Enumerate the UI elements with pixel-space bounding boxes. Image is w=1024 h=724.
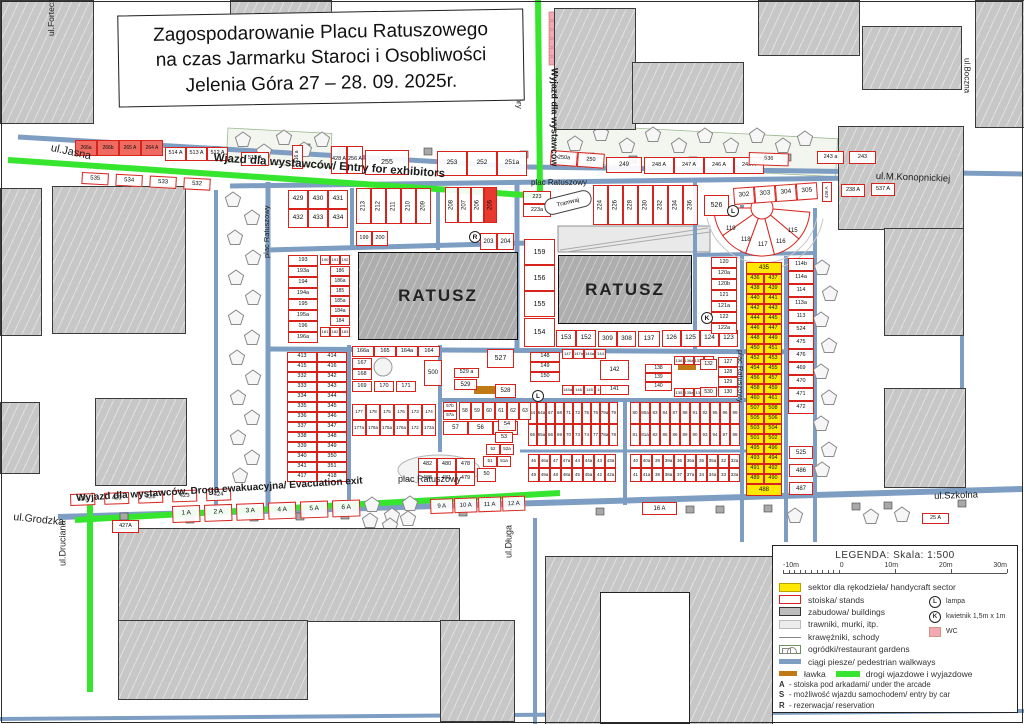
legend-item-label: drogi wjazdowe i wyjazdowe bbox=[866, 669, 973, 679]
stall-47a: 47a bbox=[561, 454, 572, 468]
stall-449: 449 bbox=[764, 334, 782, 344]
scale-tick: 20m bbox=[939, 562, 953, 569]
stall-6a: 6 A bbox=[332, 499, 361, 517]
stall-434: 434 bbox=[328, 209, 348, 228]
stall-482: 482 bbox=[418, 458, 437, 472]
stall-456: 456 bbox=[746, 374, 764, 384]
stall-57a: 57a bbox=[443, 411, 457, 420]
stall-429: 429 bbox=[288, 190, 308, 209]
stall-164: 164 bbox=[418, 346, 440, 357]
stall-469: 469 bbox=[788, 362, 814, 375]
stall-440: 440 bbox=[746, 294, 764, 304]
stall-495: 495 bbox=[746, 444, 764, 454]
stall-65a: 65a bbox=[537, 424, 546, 446]
stall-476: 476 bbox=[788, 349, 814, 362]
stall-334: 334 bbox=[287, 392, 317, 402]
building bbox=[758, 0, 860, 56]
legend-item-label: krawężniki, schody bbox=[808, 632, 879, 642]
stall-38a: 38a bbox=[663, 468, 674, 482]
street-label-boczna: ul.Boczna bbox=[962, 58, 970, 118]
street-label-szkolna: ul.Szkolna bbox=[934, 490, 978, 501]
stall-537a: 537 A bbox=[871, 183, 895, 196]
legend-swatch-bench bbox=[779, 671, 797, 676]
stall-38: 38 bbox=[652, 468, 663, 482]
scale-tick: 0 bbox=[840, 562, 844, 569]
stall-195a: 195a bbox=[288, 310, 318, 321]
plac-ratuszowy-label-east: plac Ratuszowy bbox=[736, 350, 744, 430]
legend-symbol-label: WC bbox=[946, 628, 958, 635]
building bbox=[95, 398, 187, 486]
stall-121a: 121a bbox=[711, 301, 737, 312]
stall-16a: 16 A bbox=[642, 502, 677, 515]
stall-177a: 177a bbox=[352, 420, 366, 436]
stall-208: 208 bbox=[445, 187, 458, 223]
stall-199: 199 bbox=[356, 231, 372, 246]
svg-text:117: 117 bbox=[758, 242, 768, 248]
stall-52: 52 bbox=[486, 444, 500, 455]
stall-61: 61 bbox=[495, 402, 507, 420]
stall-228: 228 bbox=[623, 185, 638, 225]
scale-bar: -10m 0 10m 20m 30m bbox=[783, 562, 1007, 578]
stall-10a: 10 A bbox=[454, 497, 478, 513]
stall-526: 526 bbox=[704, 195, 729, 216]
stall-436: 436 bbox=[746, 274, 764, 284]
stall-344: 344 bbox=[317, 392, 347, 402]
stall-459: 459 bbox=[764, 384, 782, 394]
stall-190: 190 bbox=[320, 255, 330, 265]
map-title: Zagospodarowanie Placu Ratuszowego na cz… bbox=[117, 8, 525, 107]
stall-126: 126 bbox=[662, 330, 681, 347]
legend-swatch-walkway bbox=[779, 659, 801, 664]
stall-504: 504 bbox=[764, 424, 782, 434]
stall-25a: 25 A bbox=[922, 513, 949, 524]
stall-470: 470 bbox=[788, 375, 814, 388]
stall-184a: 184a bbox=[330, 306, 350, 316]
circle-marker-r: R bbox=[469, 231, 481, 243]
stall-489: 489 bbox=[746, 474, 764, 484]
stall-431: 431 bbox=[328, 190, 348, 209]
round-planter bbox=[374, 358, 392, 376]
stall-147: 147 bbox=[562, 349, 573, 359]
stall-514a: 514 A bbox=[165, 147, 186, 161]
legend-item-label: ogródki/restaurant gardens bbox=[808, 644, 910, 654]
legend-note: - rezerwacja/ reservation bbox=[789, 702, 874, 711]
site-map: 115 116 117 118 119 bbox=[0, 0, 1024, 724]
stall-36a: 36a bbox=[685, 454, 696, 468]
stall-249: 249 bbox=[606, 157, 642, 173]
stall-505: 505 bbox=[746, 414, 764, 424]
stall-246a: 246 A bbox=[704, 157, 734, 174]
stall-491: 491 bbox=[746, 464, 764, 474]
stall-39a: 39a bbox=[663, 454, 674, 468]
stall-166a: 166a bbox=[352, 346, 374, 357]
stall-340: 340 bbox=[287, 452, 317, 462]
stall-142: 142 bbox=[600, 360, 629, 380]
stall-251a: 251a bbox=[497, 151, 527, 176]
stall-494: 494 bbox=[764, 454, 782, 464]
stall-155: 155 bbox=[524, 291, 555, 317]
stall-183: 183 bbox=[340, 327, 350, 337]
stall-146: 146 bbox=[573, 385, 584, 395]
stall-427a: 427A bbox=[112, 520, 139, 533]
stall-45a: 45a bbox=[583, 468, 594, 482]
stall-524: 524 bbox=[788, 323, 814, 336]
stall-432: 432 bbox=[288, 209, 308, 228]
stall-488: 488 bbox=[746, 484, 782, 496]
stall-243a: 243 a bbox=[817, 151, 844, 164]
stall-193a: 193a bbox=[288, 266, 318, 277]
stall-11a: 11 A bbox=[478, 497, 502, 513]
stall-207: 207 bbox=[458, 187, 471, 223]
wc-icon bbox=[929, 627, 941, 637]
stall-48a: 48a bbox=[561, 468, 572, 482]
stall-132: 132 bbox=[700, 359, 717, 370]
stall-415: 415 bbox=[287, 362, 317, 372]
stall-114a: 114a bbox=[788, 271, 814, 284]
stall-48: 48 bbox=[550, 468, 561, 482]
scale-tick: -10m bbox=[783, 562, 799, 569]
stall-33a: 33a bbox=[729, 468, 740, 482]
stall-145: 145 bbox=[584, 385, 595, 395]
stall-149: 149 bbox=[530, 362, 560, 372]
stall-152: 152 bbox=[576, 330, 596, 347]
stall-66: 66 bbox=[546, 424, 555, 446]
stall-120b: 120b bbox=[711, 279, 737, 290]
building bbox=[975, 0, 1024, 128]
legend-symbols: Llampa Kkwietnik 1,5m x 1m WC bbox=[929, 594, 1015, 639]
stall-70: 70 bbox=[564, 424, 573, 446]
stall-458: 458 bbox=[746, 384, 764, 394]
stall-145a: 145a bbox=[562, 385, 573, 395]
stall-451: 451 bbox=[764, 344, 782, 354]
stall-333: 333 bbox=[287, 382, 317, 392]
stall-175a: 175a bbox=[380, 420, 394, 436]
stall-81a: 81a bbox=[640, 424, 650, 446]
stall-46: 46 bbox=[528, 454, 539, 468]
stall-168: 168 bbox=[352, 369, 372, 380]
courtyard bbox=[600, 592, 690, 724]
stall-426a: 426 A bbox=[822, 182, 832, 202]
stall-194: 194 bbox=[288, 277, 318, 288]
stall-144a: 144a bbox=[584, 349, 595, 359]
note-key: S bbox=[779, 691, 789, 700]
stall-62: 62 bbox=[507, 402, 519, 420]
stall-351: 351 bbox=[317, 462, 347, 472]
stall-113a: 113a bbox=[788, 297, 814, 310]
stall-44a: 44a bbox=[583, 454, 594, 468]
stall-503: 503 bbox=[746, 424, 764, 434]
legend-swatch-road bbox=[836, 671, 860, 677]
stall-139: 139 bbox=[645, 373, 672, 382]
stall-211: 211 bbox=[386, 188, 401, 224]
stall-37a: 37a bbox=[685, 468, 696, 482]
svg-text:115: 115 bbox=[788, 228, 798, 234]
stall-439: 439 bbox=[764, 284, 782, 294]
stall-138: 138 bbox=[645, 364, 672, 373]
stall-347: 347 bbox=[317, 422, 347, 432]
stall-89: 89 bbox=[680, 424, 690, 446]
stall-248a: 248 A bbox=[644, 157, 674, 174]
stall-141: 141 bbox=[600, 385, 629, 395]
stall-42: 42 bbox=[594, 468, 605, 482]
stall-46a: 46a bbox=[539, 454, 550, 468]
stall-164a: 164a bbox=[396, 346, 418, 357]
stall-47: 47 bbox=[550, 454, 561, 468]
stall-532: 532 bbox=[183, 177, 211, 190]
stall-144: 144 bbox=[595, 349, 606, 359]
note-key: R bbox=[779, 702, 789, 711]
stall-472: 472 bbox=[788, 401, 814, 414]
stall-487: 487 bbox=[789, 482, 813, 495]
stall-127: 127 bbox=[718, 357, 738, 367]
stall-75: 75 bbox=[582, 402, 591, 424]
stall-49: 49 bbox=[528, 468, 539, 482]
legend: LEGENDA: Skala: 1:500 -10m 0 10m 20m 30m… bbox=[772, 545, 1018, 713]
stall-305: 305 bbox=[796, 182, 818, 200]
stall-51: 51 bbox=[483, 456, 497, 467]
stall-39: 39 bbox=[652, 454, 663, 468]
stall-88: 88 bbox=[680, 402, 690, 424]
stall-349: 349 bbox=[317, 442, 347, 452]
stall-490: 490 bbox=[764, 474, 782, 484]
stall-441: 441 bbox=[764, 294, 782, 304]
stall-114: 114 bbox=[788, 284, 814, 297]
stall-335: 335 bbox=[287, 402, 317, 412]
stall-176: 176 bbox=[394, 404, 408, 420]
town-hall-west: RATUSZ bbox=[358, 252, 518, 340]
stall-341: 341 bbox=[287, 462, 317, 472]
stall-336: 336 bbox=[287, 412, 317, 422]
stall-500: 500 bbox=[424, 360, 442, 386]
stall-534: 534 bbox=[115, 174, 143, 187]
stall-173: 173 bbox=[408, 404, 422, 420]
stall-72: 72 bbox=[573, 402, 582, 424]
street-label-druciana: ul.Druciana bbox=[59, 486, 68, 566]
stall-414: 414 bbox=[317, 352, 347, 362]
stall-54: 54 bbox=[498, 419, 516, 431]
stall-302: 302 bbox=[733, 187, 755, 205]
stall-445: 445 bbox=[764, 314, 782, 324]
stall-342: 342 bbox=[317, 372, 347, 382]
stall-348: 348 bbox=[317, 432, 347, 442]
stall-339: 339 bbox=[287, 442, 317, 452]
circle-marker-l: L bbox=[532, 390, 544, 402]
stall-57: 57 bbox=[443, 421, 468, 435]
legend-swatch-buildings bbox=[779, 607, 801, 616]
stall-71: 71 bbox=[564, 402, 573, 424]
stall-43a: 43a bbox=[605, 454, 616, 468]
circle-marker-k: K bbox=[701, 312, 713, 324]
svg-text:118: 118 bbox=[741, 237, 751, 243]
stall-507: 507 bbox=[746, 404, 764, 414]
stall-528: 528 bbox=[495, 384, 516, 398]
stall-226: 226 bbox=[608, 185, 623, 225]
legend-symbol-label: kwietnik 1,5m x 1m bbox=[946, 613, 1006, 620]
stall-159: 159 bbox=[524, 239, 555, 265]
stall-32a: 32a bbox=[729, 454, 740, 468]
exit-for-exhibitors-vertical-label: Wyjazd dla wystawców bbox=[549, 68, 558, 188]
stall-52a: 52a bbox=[500, 444, 514, 455]
legend-swatch-handicraft bbox=[779, 583, 801, 592]
stall-120: 120 bbox=[711, 257, 737, 268]
stall-170: 170 bbox=[374, 381, 394, 392]
scale-tick: 30m bbox=[993, 562, 1007, 569]
stall-343: 343 bbox=[317, 382, 347, 392]
stall-206: 206 bbox=[471, 187, 484, 223]
stall-444: 444 bbox=[746, 314, 764, 324]
legend-item-label: zabudowa/ buildings bbox=[808, 607, 885, 617]
stall-136: 136 bbox=[674, 356, 684, 365]
stall-153: 153 bbox=[556, 330, 576, 347]
stall-174: 174 bbox=[422, 404, 436, 420]
stall-203: 203 bbox=[480, 233, 497, 250]
legend-swatch-curb bbox=[779, 637, 801, 638]
stall-212: 212 bbox=[371, 188, 386, 224]
stall-209: 209 bbox=[416, 188, 431, 224]
stall-59: 59 bbox=[471, 402, 483, 420]
stall-172a: 172a bbox=[422, 420, 436, 436]
stall-44: 44 bbox=[572, 454, 583, 468]
stall-80: 80 bbox=[630, 402, 640, 424]
stall-446: 446 bbox=[746, 324, 764, 334]
note-key: A bbox=[779, 681, 789, 690]
stall-192: 192 bbox=[340, 255, 350, 265]
town-hall-label: RATUSZ bbox=[585, 280, 665, 300]
stall-193: 193 bbox=[288, 255, 318, 266]
stall-506: 506 bbox=[764, 414, 782, 424]
stall-250: 250 bbox=[577, 152, 605, 169]
stall-513a: 513 A bbox=[186, 147, 207, 161]
stall-2a: 2 A bbox=[204, 504, 233, 522]
stall-492: 492 bbox=[764, 464, 782, 474]
stall-200: 200 bbox=[372, 231, 388, 246]
stall-67: 67 bbox=[546, 402, 555, 424]
legend-symbol-label: lampa bbox=[946, 598, 965, 605]
stall-486: 486 bbox=[789, 464, 813, 477]
plac-ratuszowy-label-bottom: plac Ratuszowy bbox=[398, 475, 461, 484]
svg-text:119: 119 bbox=[726, 226, 736, 232]
stall-96: 96 bbox=[720, 402, 730, 424]
building bbox=[632, 62, 744, 124]
stall-460: 460 bbox=[746, 394, 764, 404]
stall-167: 167 bbox=[352, 358, 372, 369]
stall-73: 73 bbox=[573, 424, 582, 446]
stall-493: 493 bbox=[746, 454, 764, 464]
stall-64a: 64a bbox=[537, 402, 546, 424]
stall-5a: 5 A bbox=[300, 501, 329, 519]
stall-178a: 178a bbox=[366, 420, 380, 436]
stall-79a: 79a bbox=[600, 402, 609, 424]
title-line-3: Jelenia Góra 27 – 28. 09. 2025r. bbox=[185, 68, 457, 98]
stall-78: 78 bbox=[609, 424, 618, 446]
stall-186: 186 bbox=[330, 266, 350, 276]
stall-125: 125 bbox=[681, 330, 700, 347]
stall-471: 471 bbox=[788, 388, 814, 401]
stall-97: 97 bbox=[720, 424, 730, 446]
stall-443: 443 bbox=[764, 304, 782, 314]
stall-243: 243 bbox=[849, 151, 876, 164]
legend-item-label: stoiska/ stands bbox=[808, 595, 864, 605]
stall-191: 191 bbox=[330, 255, 340, 265]
stall-303: 303 bbox=[754, 185, 776, 203]
stall-74: 74 bbox=[582, 424, 591, 446]
stall-42a: 42a bbox=[605, 468, 616, 482]
stall-185a: 185a bbox=[330, 296, 350, 306]
stall-196: 196 bbox=[288, 321, 318, 332]
stall-169: 169 bbox=[352, 381, 372, 392]
stall-57b: 57b bbox=[443, 402, 457, 411]
stall-128: 128 bbox=[718, 367, 738, 377]
stall-224: 224 bbox=[593, 185, 608, 225]
stall-496: 496 bbox=[764, 444, 782, 454]
stall-252: 252 bbox=[467, 151, 497, 176]
stall-34: 34 bbox=[696, 468, 707, 482]
stall-147a: 147a bbox=[573, 349, 584, 359]
stall-457: 457 bbox=[764, 374, 782, 384]
stall-186a: 186a bbox=[330, 276, 350, 286]
stall-264a: 264 A bbox=[141, 140, 163, 156]
stall-122a: 122a bbox=[711, 323, 737, 334]
stall-90: 90 bbox=[690, 424, 700, 446]
building bbox=[118, 620, 308, 700]
stall-416: 416 bbox=[317, 362, 347, 372]
stall-308: 308 bbox=[617, 331, 636, 347]
legend-note: - możliwość wjazdu samochodem/ entry by … bbox=[789, 691, 950, 700]
stall-45: 45 bbox=[572, 468, 583, 482]
stall-435: 435 bbox=[746, 262, 782, 274]
stall-36: 36 bbox=[674, 454, 685, 468]
flowerbox-icon: K bbox=[929, 611, 941, 623]
stall-204: 204 bbox=[497, 233, 514, 250]
stall-213: 213 bbox=[356, 188, 371, 224]
stall-65: 65 bbox=[528, 424, 537, 446]
stall-236: 236 bbox=[683, 185, 698, 225]
stall-41a: 41a bbox=[641, 468, 652, 482]
stall-41: 41 bbox=[630, 468, 641, 482]
stall-196a: 196a bbox=[288, 332, 318, 343]
stall-76: 76 bbox=[591, 402, 600, 424]
stall-304: 304 bbox=[775, 184, 797, 202]
stall-455: 455 bbox=[764, 364, 782, 374]
building bbox=[52, 186, 186, 334]
stall-92: 92 bbox=[700, 402, 710, 424]
stall-135: 135 bbox=[674, 388, 684, 397]
stall-171: 171 bbox=[396, 381, 416, 392]
stall-178: 178 bbox=[366, 404, 380, 420]
stall-43: 43 bbox=[594, 454, 605, 468]
stall-535: 535 bbox=[81, 172, 109, 185]
svg-text:116: 116 bbox=[776, 239, 786, 245]
stall-430: 430 bbox=[308, 190, 328, 209]
stall-525: 525 bbox=[789, 446, 813, 459]
stall-40a: 40a bbox=[641, 454, 652, 468]
legend-swatch-garden bbox=[779, 645, 801, 654]
stall-63: 63 bbox=[519, 402, 531, 420]
stall-438: 438 bbox=[746, 284, 764, 294]
stall-82: 82 bbox=[650, 424, 660, 446]
street-label-forteczna: ul.Forteczna bbox=[47, 0, 56, 36]
stall-120a: 120a bbox=[711, 268, 737, 279]
legend-swatch-stands bbox=[779, 595, 801, 604]
stall-35a: 35a bbox=[707, 454, 718, 468]
stall-148: 148 bbox=[530, 352, 560, 362]
stall-77: 77 bbox=[591, 424, 600, 446]
stall-345: 345 bbox=[317, 402, 347, 412]
stall-83: 83 bbox=[650, 402, 660, 424]
stall-58: 58 bbox=[459, 402, 471, 420]
stall-129: 129 bbox=[718, 377, 738, 387]
stall-40: 40 bbox=[630, 454, 641, 468]
